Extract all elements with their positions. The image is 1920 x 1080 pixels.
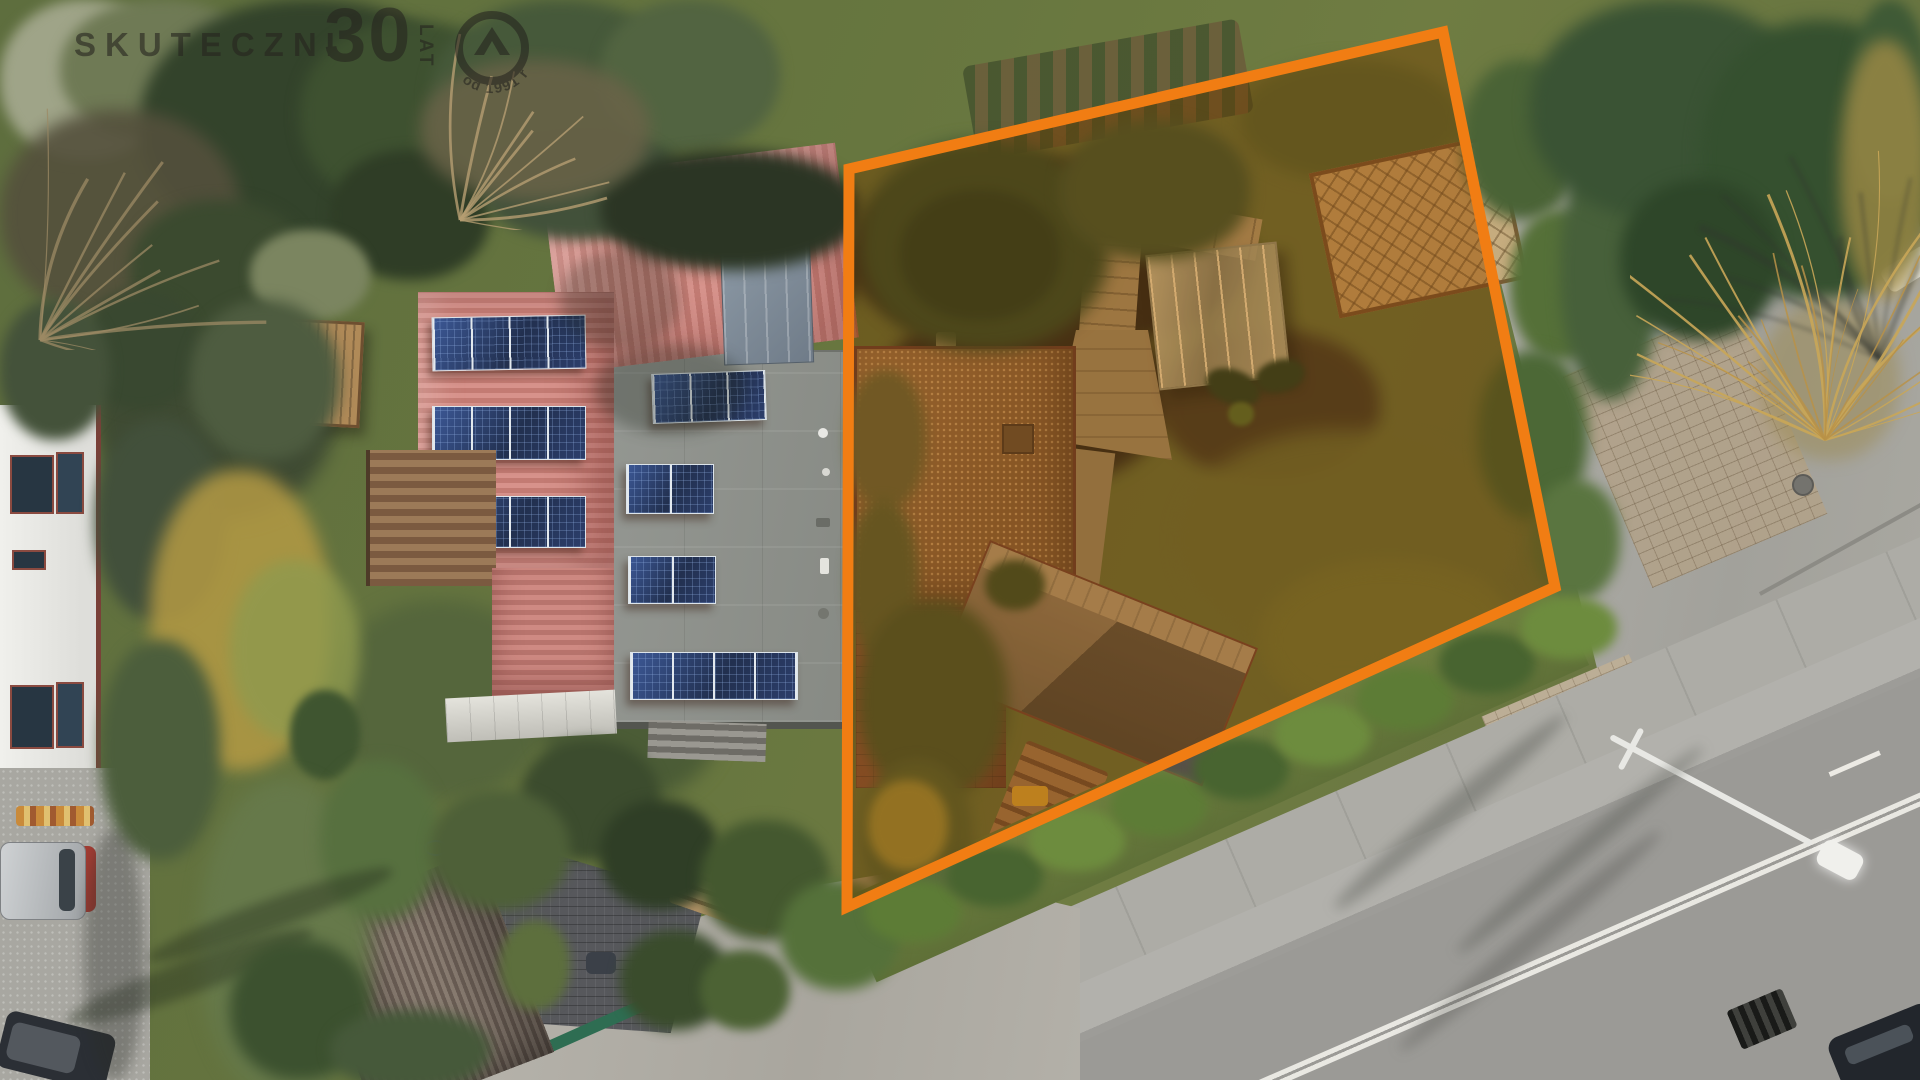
parcel-boundary-overlay [0, 0, 1920, 1080]
aerial-property-photo: SKUTECZNI 30 LAT od 1991 roku [0, 0, 1920, 1080]
parcel-outline-polygon [847, 32, 1555, 907]
